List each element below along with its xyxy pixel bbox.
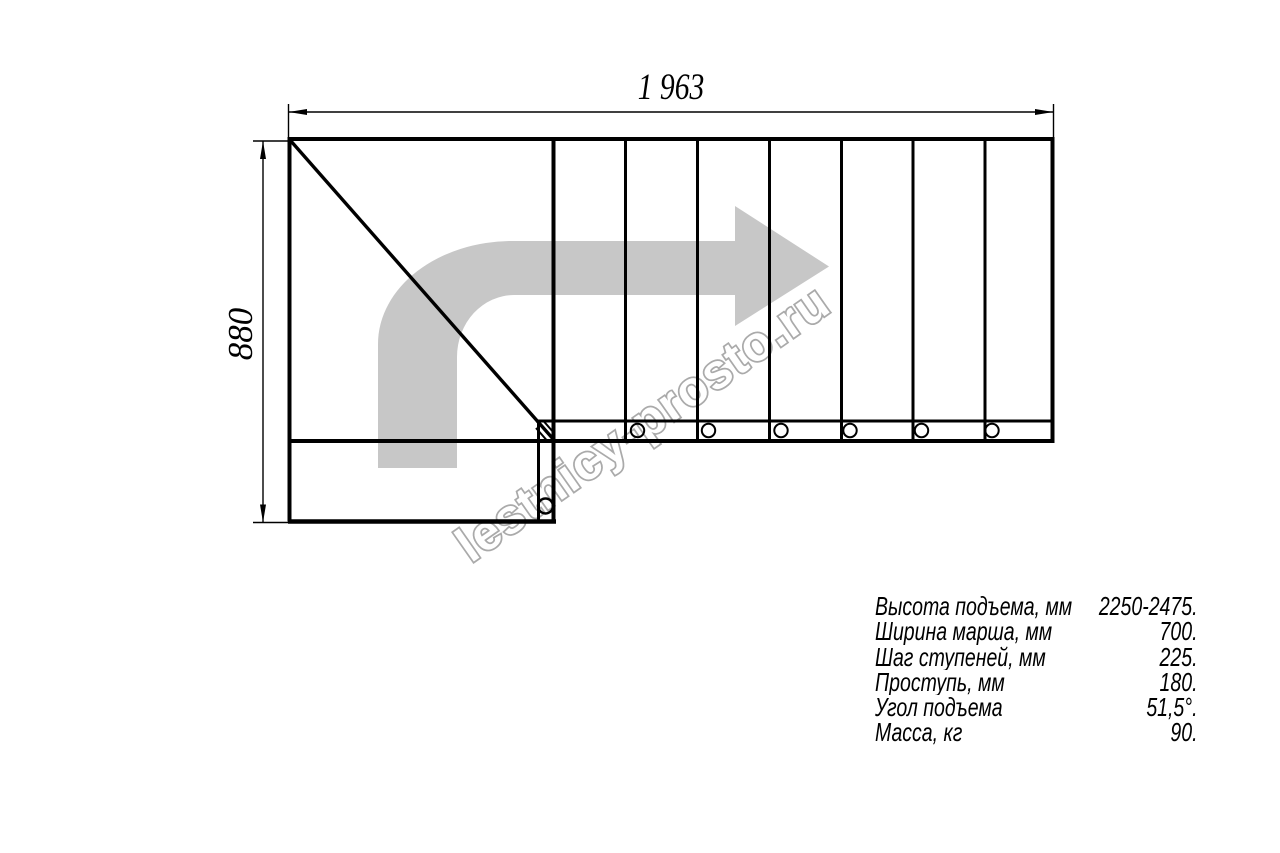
svg-text:880: 880 <box>221 307 260 360</box>
svg-text:1 963: 1 963 <box>638 67 705 108</box>
